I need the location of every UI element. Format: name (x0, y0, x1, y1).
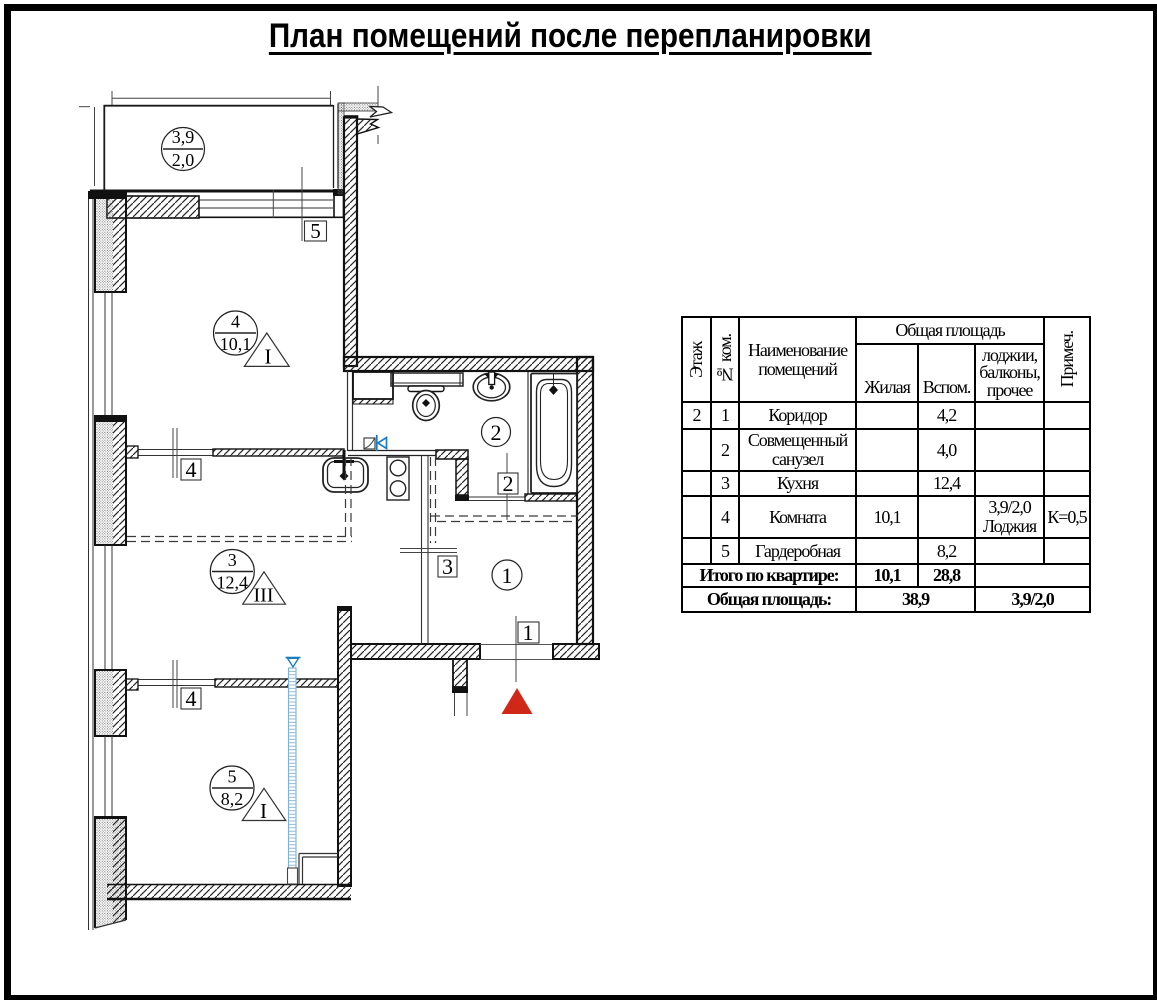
svg-text:I: I (260, 799, 267, 823)
svg-text:12,4: 12,4 (217, 573, 249, 593)
svg-text:4: 4 (186, 457, 197, 482)
svg-text:3,9: 3,9 (172, 127, 195, 147)
svg-text:1: 1 (523, 620, 534, 645)
svg-text:8,2: 8,2 (221, 789, 244, 809)
svg-text:2,0: 2,0 (172, 150, 195, 170)
svg-text:5: 5 (310, 219, 321, 243)
svg-text:2: 2 (491, 420, 502, 445)
svg-text:1: 1 (502, 563, 513, 588)
svg-text:5: 5 (228, 767, 237, 787)
svg-text:3: 3 (442, 554, 453, 579)
svg-text:I: I (265, 345, 272, 369)
svg-text:10,1: 10,1 (220, 334, 252, 354)
svg-text:4: 4 (231, 312, 240, 332)
svg-text:4: 4 (186, 686, 197, 711)
svg-text:2: 2 (503, 471, 514, 496)
svg-text:3: 3 (228, 550, 237, 570)
svg-text:III: III (254, 585, 274, 607)
